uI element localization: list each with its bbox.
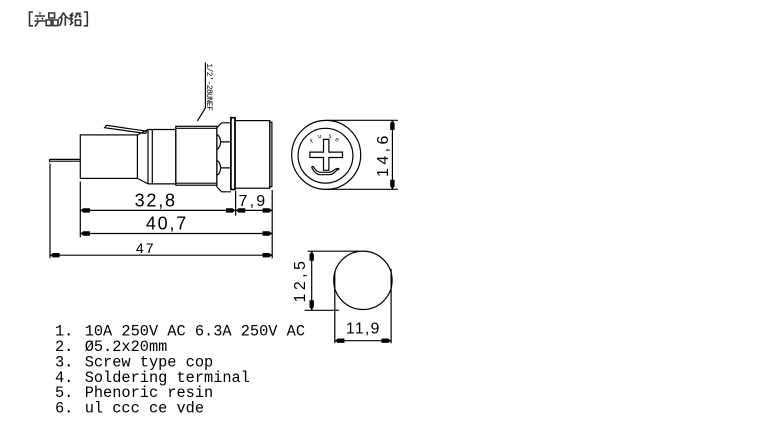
svg-text:11,9: 11,9	[346, 320, 381, 337]
svg-text:14,6: 14,6	[375, 132, 392, 177]
svg-text:e: e	[334, 136, 341, 144]
svg-text:32,8: 32,8	[135, 191, 177, 211]
svg-text:1/2'-28UNEF: 1/2'-28UNEF	[204, 63, 213, 111]
svg-text:12,5: 12,5	[292, 258, 309, 303]
svg-text:ul ccc ce vde: ul ccc ce vde	[85, 400, 204, 418]
svg-text:47: 47	[136, 240, 156, 256]
svg-text:7,9: 7,9	[238, 193, 267, 210]
svg-text:u: u	[317, 133, 323, 141]
svg-text:s: s	[328, 132, 333, 140]
svg-text:6.: 6.	[55, 400, 73, 418]
svg-text:40,7: 40,7	[146, 214, 188, 234]
svg-text:f: f	[309, 138, 316, 146]
